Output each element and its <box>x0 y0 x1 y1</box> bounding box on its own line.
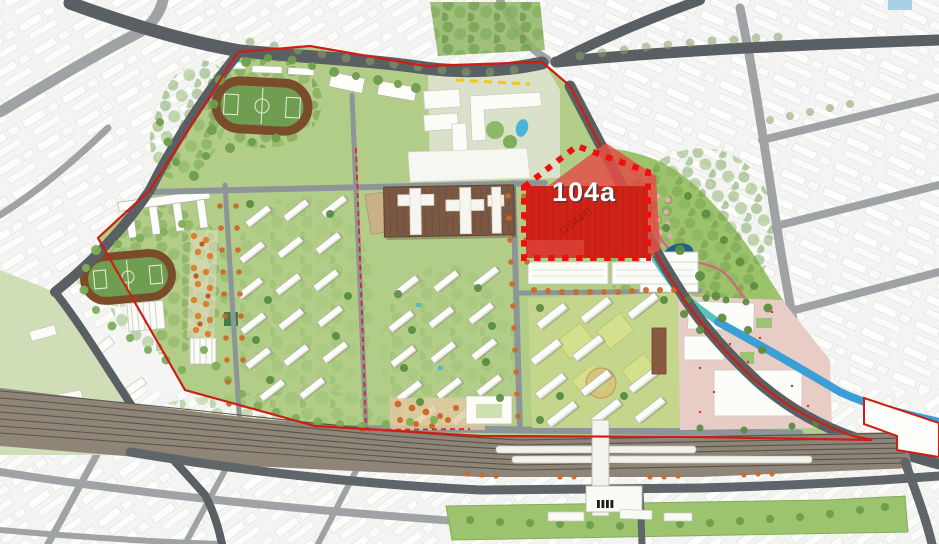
campus-flat-building <box>408 148 530 182</box>
masterplan-map[interactable]: (104a#) 104a 104a <box>0 0 939 544</box>
station-building <box>586 486 642 512</box>
autumn-garden-strip <box>187 230 218 339</box>
masterplan-svg: (104a#) 104a 104a <box>0 0 939 544</box>
retained-brick-building <box>652 328 666 374</box>
running-track-north <box>215 80 309 133</box>
context-park-north <box>430 2 545 56</box>
residential-block-east <box>528 291 692 429</box>
retained-factory-building <box>365 185 517 241</box>
parcel-label: 104a <box>552 177 616 207</box>
